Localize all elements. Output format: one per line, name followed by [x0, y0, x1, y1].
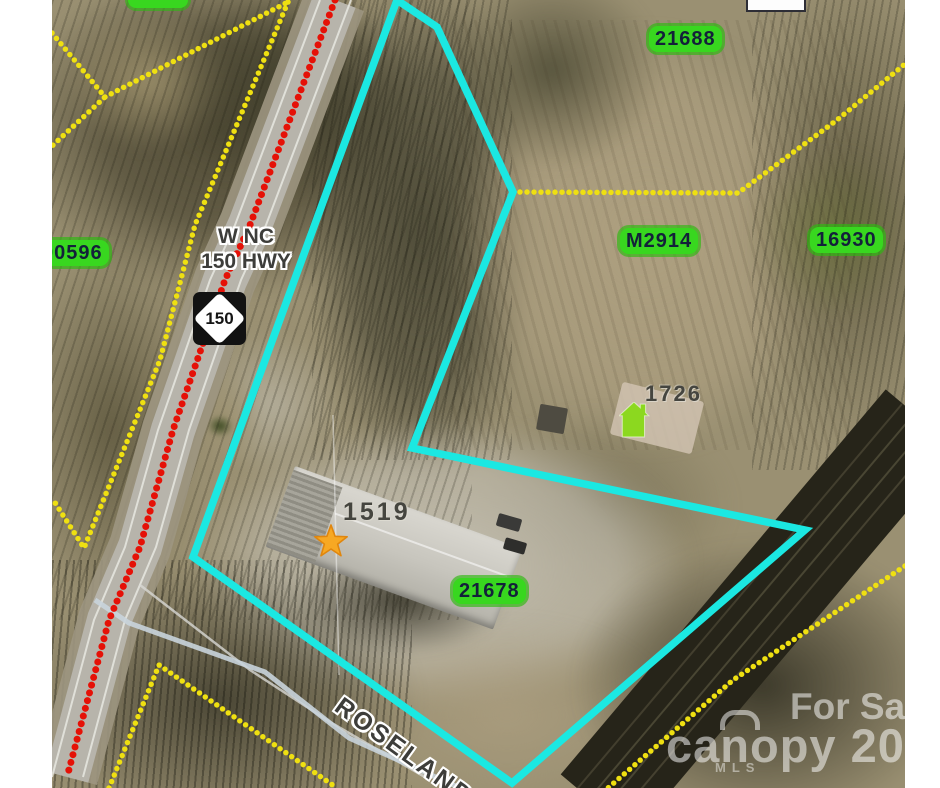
cutoff-map-element: [746, 0, 806, 12]
canopy-roof-arc-icon: [720, 710, 760, 730]
parcel-label: 00596: [52, 240, 109, 266]
parcel-boundary: [105, 2, 288, 97]
parcel-boundary: [52, 33, 105, 146]
road-name-label: W NC 150 HWY: [180, 224, 312, 274]
parcel-label: M2914: [620, 228, 698, 254]
aerial-parcel-map[interactable]: 21688 00596 M2914 16930 21678 1726 1519 …: [52, 0, 905, 788]
road-surface-nc150: [67, 0, 335, 777]
watermark-mls: MLS: [715, 760, 760, 775]
road-name-line1: W NC: [180, 224, 312, 249]
nc-route-shield-icon: 150: [193, 292, 246, 345]
selected-listing-star-icon: [313, 524, 349, 560]
parcel-label: 21678: [453, 578, 526, 604]
watermark-brand: canopy 202: [666, 718, 905, 773]
road-name-line2: 150 HWY: [180, 249, 312, 274]
screenshot-page: 21688 00596 M2914 16930 21678 1726 1519 …: [0, 0, 940, 788]
parcel-boundary: [109, 665, 337, 788]
watermark-year: 202: [851, 719, 905, 772]
parcel-label-partial: [128, 0, 188, 8]
address-label: 1726: [645, 381, 702, 407]
parcel-label: 21688: [649, 26, 722, 52]
comp-house-icon: [619, 402, 651, 438]
address-label: 1519: [343, 498, 411, 527]
parcel-boundary: [513, 64, 905, 193]
map-line-overlay: [52, 0, 905, 788]
shield-number: 150: [193, 309, 246, 329]
parcel-label: 16930: [810, 227, 883, 253]
